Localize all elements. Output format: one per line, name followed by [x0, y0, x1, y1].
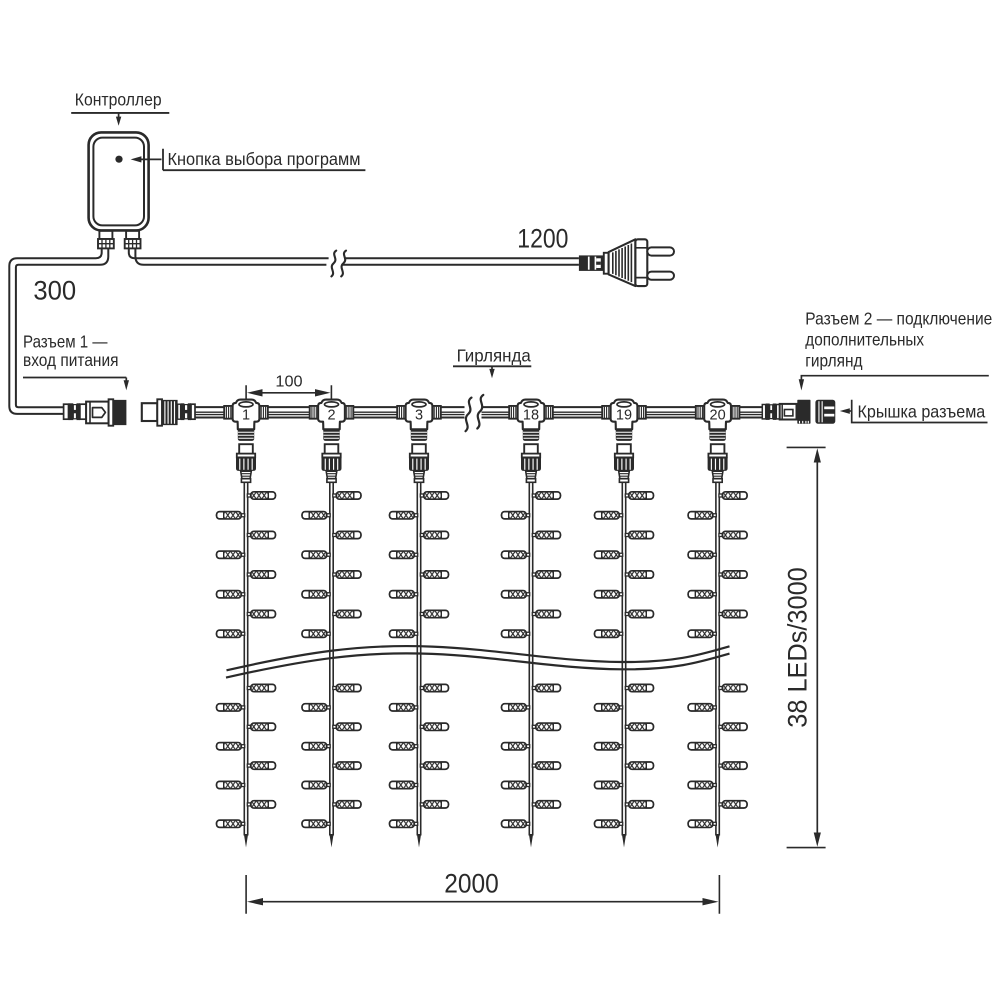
svg-text:20: 20	[710, 407, 726, 423]
svg-text:1: 1	[242, 407, 250, 423]
svg-text:вход питания: вход питания	[23, 350, 119, 370]
svg-text:18: 18	[523, 407, 539, 423]
svg-text:3: 3	[415, 407, 423, 423]
svg-text:дополнительных: дополнительных	[805, 329, 924, 349]
svg-text:Гирлянда: Гирлянда	[457, 346, 531, 366]
svg-text:Крышка разъема: Крышка разъема	[858, 401, 986, 421]
svg-text:100: 100	[275, 374, 303, 391]
svg-text:38 LEDs/3000: 38 LEDs/3000	[783, 567, 813, 728]
svg-text:Разъем 2 — подключение: Разъем 2 — подключение	[805, 308, 992, 328]
svg-text:19: 19	[616, 407, 632, 423]
svg-text:2: 2	[327, 407, 335, 423]
svg-text:Кнопка выбора программ: Кнопка выбора программ	[168, 149, 361, 169]
svg-text:Разъем 1 —: Разъем 1 —	[23, 331, 108, 351]
svg-text:Контроллер: Контроллер	[75, 90, 162, 110]
svg-text:1200: 1200	[517, 224, 568, 254]
svg-text:300: 300	[33, 276, 76, 306]
svg-text:гирлянд: гирлянд	[805, 350, 862, 370]
svg-text:2000: 2000	[444, 869, 499, 899]
